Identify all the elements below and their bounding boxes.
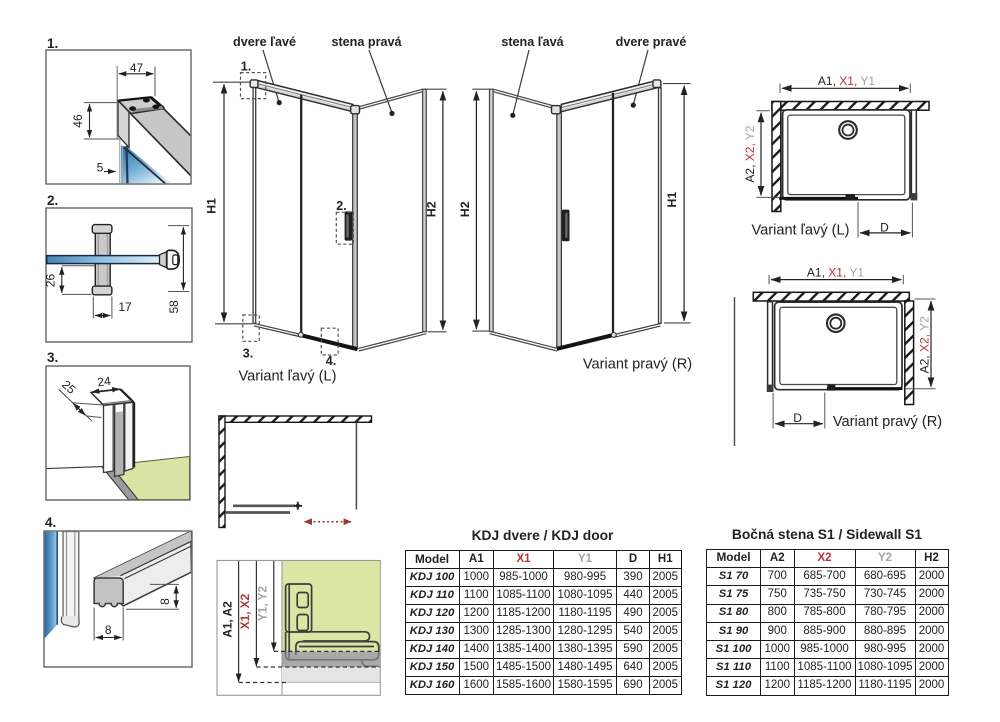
- svg-text:A2, X2, Y2: A2, X2, Y2: [743, 125, 757, 183]
- svg-text:D: D: [793, 411, 802, 425]
- svg-text:2.: 2.: [47, 193, 58, 208]
- svg-text:H1: H1: [665, 192, 679, 208]
- svg-text:47: 47: [130, 61, 144, 75]
- svg-text:Variant pravý (R): Variant pravý (R): [583, 357, 692, 373]
- svg-text:A1, X1, Y1: A1, X1, Y1: [807, 265, 865, 279]
- svg-text:8: 8: [158, 598, 172, 605]
- svg-text:stena pravá: stena pravá: [331, 35, 402, 49]
- svg-text:8: 8: [105, 623, 112, 637]
- svg-text:1.: 1.: [47, 36, 58, 51]
- svg-text:2.: 2.: [336, 199, 346, 213]
- svg-text:58: 58: [167, 300, 181, 314]
- svg-text:4.: 4.: [326, 354, 336, 368]
- svg-text:A1, A2: A1, A2: [221, 601, 235, 638]
- svg-text:24: 24: [97, 374, 112, 390]
- svg-text:dvere ľavé: dvere ľavé: [233, 35, 296, 49]
- svg-text:stena ľavá: stena ľavá: [501, 35, 564, 49]
- svg-text:H2: H2: [425, 201, 439, 217]
- svg-text:Variant pravý (R): Variant pravý (R): [833, 414, 942, 430]
- svg-text:dvere pravé: dvere pravé: [616, 35, 687, 49]
- svg-text:Y1, Y2: Y1, Y2: [255, 585, 269, 621]
- svg-text:17: 17: [118, 300, 132, 314]
- svg-text:3.: 3.: [243, 347, 253, 361]
- svg-text:4.: 4.: [45, 515, 56, 530]
- svg-text:46: 46: [71, 114, 85, 128]
- svg-text:3.: 3.: [47, 350, 58, 365]
- svg-text:H1: H1: [204, 198, 218, 214]
- svg-text:A2, X2, Y2: A2, X2, Y2: [917, 316, 931, 374]
- svg-text:1.: 1.: [241, 60, 251, 74]
- svg-text:26: 26: [44, 274, 58, 288]
- svg-text:X1, X2: X1, X2: [238, 593, 252, 629]
- svg-text:Variant ľavý (L): Variant ľavý (L): [751, 223, 849, 239]
- svg-text:H2: H2: [458, 201, 472, 217]
- svg-text:5: 5: [97, 161, 104, 175]
- svg-text:Variant ľavý (L): Variant ľavý (L): [238, 369, 336, 385]
- svg-text:A1, X1, Y1: A1, X1, Y1: [818, 74, 876, 88]
